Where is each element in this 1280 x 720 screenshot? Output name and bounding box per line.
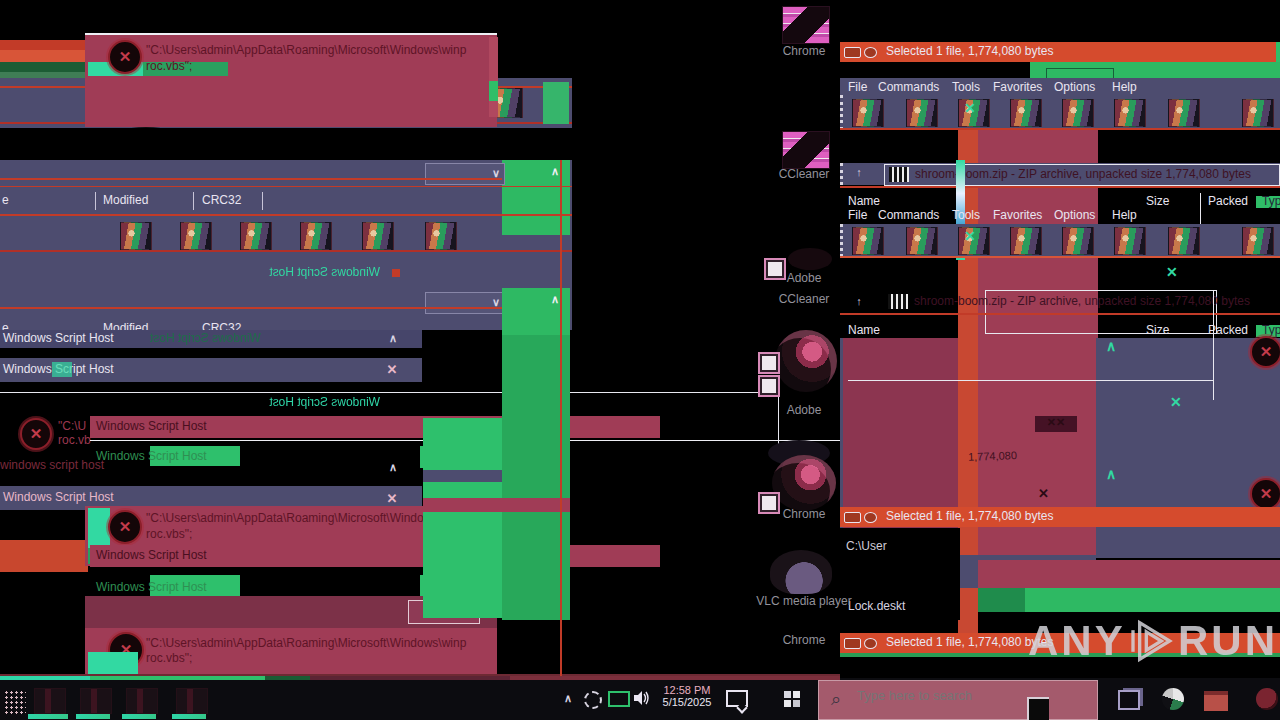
glitch-block: [1276, 42, 1280, 62]
toolbar-button-wizard[interactable]: [1168, 99, 1200, 127]
desktop-icon-label: VLC media player: [756, 594, 852, 608]
tray-expand-icon[interactable]: ∧: [560, 692, 576, 705]
glitch-x-mark: ✕: [964, 228, 976, 244]
running-indicator: [122, 714, 156, 719]
chrome-icon: [782, 6, 830, 44]
key-icon: [864, 47, 877, 58]
toolbar-button-add[interactable]: [852, 99, 884, 127]
wsh-dialog: ✕ "C:\Users\admin\AppData\Roaming\Micros…: [85, 33, 497, 127]
glitch-blob: [788, 248, 832, 270]
address-box[interactable]: shroom-boom.zip - ZIP archive, unpacked …: [884, 164, 1280, 186]
menu-item-favorites[interactable]: Favorites: [993, 80, 1042, 94]
desktop-icon-label: Adobe: [762, 403, 846, 417]
wsh-title: Windows Script Host: [3, 491, 114, 505]
menu-item-commands[interactable]: Commands: [878, 208, 939, 222]
column-header-packed[interactable]: Packed: [1208, 324, 1248, 338]
glitch-strip: [310, 676, 510, 680]
glitch-dot: [392, 269, 400, 277]
toolbar-button[interactable]: [120, 222, 152, 250]
desktop-icon-label: CCleaner: [762, 292, 846, 306]
network-display-icon[interactable]: [608, 691, 630, 707]
desktop-icon-vlc[interactable]: VLC media player: [752, 550, 856, 630]
toolbar-button-view[interactable]: [1010, 99, 1042, 127]
list-pane-fragment: [423, 418, 502, 618]
glitch-x-mark: ✕: [1038, 486, 1049, 501]
firefox-glitch-icon: [775, 330, 837, 392]
toolbar-button-delete[interactable]: [1062, 227, 1094, 255]
desktop-icon-label: CCleaner: [762, 167, 846, 181]
key-icon: [864, 638, 877, 649]
toolbar-button-view[interactable]: [1010, 227, 1042, 255]
zip-file-icon: [889, 167, 909, 182]
desktop-icon-label-lock[interactable]: Lock.deskt: [848, 600, 905, 614]
desktop-icon-label: Chrome: [762, 507, 846, 521]
address-box[interactable]: shroom-boom.zip - ZIP archive, unpacked …: [884, 292, 1278, 312]
close-icon[interactable]: ✕: [384, 362, 400, 377]
column-header-packed[interactable]: Packed: [1208, 195, 1248, 209]
action-center-icon[interactable]: [726, 690, 748, 707]
menu-item-tools[interactable]: Tools: [952, 208, 980, 222]
toolbar-button-add[interactable]: [852, 227, 884, 255]
status-text: Selected 1 file, 1,774,080 bytes: [886, 45, 1053, 59]
chevron-up-icon[interactable]: ∧: [386, 332, 400, 345]
start-button[interactable]: [4, 690, 26, 714]
toolbar-button-info[interactable]: [1242, 99, 1274, 127]
taskbar-app-button[interactable]: [80, 688, 112, 714]
column-header-type[interactable]: Typ: [1262, 195, 1280, 209]
wsh-title: Windows Script Host: [96, 549, 207, 563]
glitch-strip: [90, 676, 265, 680]
column-header-name[interactable]: Name: [848, 324, 880, 338]
dialog-message-line2: roc.vbs";: [146, 652, 192, 666]
glitch-line: [560, 160, 562, 680]
toolbar-button-extract[interactable]: [906, 227, 938, 255]
search-icon: ⌕: [831, 689, 841, 710]
desktop-icon-ccleaner[interactable]: CCleaner: [762, 131, 846, 183]
error-icon: ✕: [108, 510, 142, 544]
wsh-dialog: ✕ "C:\Users\admin\AppData\Roaming\Micros…: [85, 628, 497, 675]
column-header-name-fragment[interactable]: e: [2, 194, 9, 208]
glitch-block: [423, 498, 570, 512]
chrome-taskbar-icon[interactable]: [1162, 688, 1184, 710]
wsh-title: Windows Script Host: [3, 332, 114, 346]
glitch-block: [0, 540, 88, 572]
anyrun-watermark: ANY RUN: [1028, 612, 1278, 670]
chevron-up-icon[interactable]: ∧: [386, 461, 400, 474]
glitch-line: [0, 307, 502, 309]
menu-item-help[interactable]: Help: [1112, 208, 1137, 222]
disk-icon: [844, 47, 861, 58]
filter-dropdown[interactable]: ∨: [425, 163, 505, 185]
column-header-modified[interactable]: Modified: [103, 194, 148, 208]
glitch-line: [840, 313, 1280, 315]
file-frame-icon: [758, 375, 780, 397]
tray-circle-icon[interactable]: [584, 691, 602, 709]
windows-logo-icon[interactable]: [784, 691, 800, 707]
glitch-line: [0, 186, 572, 187]
status-text: Selected 1 file, 1,774,080 bytes: [886, 510, 1053, 524]
toolbar-button-extract[interactable]: [906, 99, 938, 127]
glitch-block: [52, 362, 72, 377]
glitch-bar: [978, 588, 1025, 612]
glitch-x-mark: ✕: [964, 100, 976, 116]
up-arrow-icon[interactable]: ↑: [850, 295, 868, 307]
glitch-strip: [510, 676, 840, 680]
vlc-glitch-icon: [770, 550, 832, 594]
running-indicator: [76, 714, 110, 719]
dialog-message-fragment: "C:\U: [58, 420, 86, 434]
toolbar-button[interactable]: [300, 222, 332, 250]
file-explorer-icon[interactable]: [1204, 691, 1228, 711]
running-indicator: [28, 714, 68, 719]
column-header-size[interactable]: Size: [1146, 195, 1169, 209]
key-icon: [864, 512, 877, 523]
anyrun-play-logo: [1128, 614, 1176, 668]
winrar-statusbar: Selected 1 file, 1,774,080 bytes: [840, 42, 1280, 62]
column-divider: [193, 192, 194, 210]
desktop-icon-label-chrome-3[interactable]: Chrome: [762, 633, 846, 647]
desktop-icon-chrome[interactable]: Chrome: [762, 6, 846, 58]
scroll-up-mark: ∧: [1106, 466, 1116, 482]
error-icon: ✕: [1250, 478, 1280, 510]
column-header-name[interactable]: Name: [848, 195, 880, 209]
column-divider: [262, 192, 263, 210]
scrollbar-fragment[interactable]: [489, 37, 498, 117]
menu-item-file[interactable]: File: [848, 208, 867, 222]
scroll-up-mark: ∧: [1106, 338, 1116, 354]
ccleaner-icon: [782, 131, 830, 169]
toolbar-button-find[interactable]: [1114, 99, 1146, 127]
disk-icon: [844, 638, 861, 649]
address-text: shroom-boom.zip - ZIP archive, unpacked …: [914, 295, 1250, 309]
glitch-blob: [1027, 697, 1049, 720]
menu-item-options[interactable]: Options: [1054, 208, 1095, 222]
watermark-any: ANY: [1028, 617, 1126, 665]
close-icon[interactable]: ✕: [384, 491, 400, 506]
speaker-icon[interactable]: [632, 689, 650, 707]
glitch-band: [978, 560, 1280, 588]
column-header-crc32[interactable]: CRC32: [202, 194, 241, 208]
column-header-size[interactable]: Size: [1146, 324, 1169, 338]
error-icon: ✕: [20, 418, 52, 450]
glitch-block: [423, 470, 502, 482]
menu-item-favorites[interactable]: Favorites: [993, 208, 1042, 222]
watermark-run: RUN: [1178, 617, 1278, 665]
desktop-icon-label: Chrome: [762, 44, 846, 58]
glitch-block: [489, 81, 498, 101]
clock-time: 12:58 PM: [656, 684, 718, 696]
menu-item-options[interactable]: Options: [1054, 80, 1095, 94]
glitch-block: [88, 652, 138, 675]
winrar-statusbar: Selected 1 file, 1,774,080 bytes: [840, 507, 1280, 527]
zip-file-icon: [888, 294, 908, 309]
dialog-message-line2: roc.vbs";: [146, 528, 192, 542]
wsh-title-mirrored: Windows Script Host: [150, 332, 261, 346]
glitch-bar: [1025, 588, 1280, 612]
toolbar-button[interactable]: [240, 222, 272, 250]
taskbar-app-button[interactable]: [176, 688, 208, 714]
glitch-x-mark: ✕: [1166, 264, 1178, 280]
taskbar-app-button[interactable]: [34, 688, 66, 714]
glitch-strip: [265, 676, 310, 680]
menu-item-file[interactable]: File: [848, 80, 867, 94]
toolbar-button-find[interactable]: [1114, 227, 1146, 255]
menu-item-help[interactable]: Help: [1112, 80, 1137, 94]
glitch-block: [1100, 130, 1240, 164]
wsh-title-mirrored: Windows Script Host: [230, 396, 380, 410]
firefox-glitch-icon: [772, 455, 836, 511]
taskbar-clock[interactable]: 12:58 PM 5/15/2025: [656, 684, 718, 708]
dialog-message-fragment: roc.vb: [58, 434, 91, 448]
glitch-line: [840, 186, 1280, 188]
ghost-line: [1213, 290, 1214, 400]
glitch-block: [543, 82, 569, 124]
glitch-block: ✕✕: [1035, 416, 1077, 432]
tray-app-icon[interactable]: [1256, 688, 1278, 710]
glitch-line: [0, 250, 572, 252]
ghost-line: [848, 380, 1213, 381]
desktop-icon-adobe[interactable]: Adobe CCleaner: [756, 248, 852, 312]
toolbar-button[interactable]: [425, 222, 457, 250]
search-box[interactable]: ⌕: [818, 680, 1098, 720]
wsh-title: Windows Script Host: [96, 420, 207, 434]
column-divider: [95, 192, 96, 210]
glitch-band: [958, 338, 978, 640]
dialog-message-line1: "C:\Users\admin\AppData\Roaming\Microsof…: [146, 637, 466, 651]
wsh-title-mirrored: Windows Script Host: [230, 266, 380, 280]
desktop-icon-chrome-2[interactable]: Chrome: [754, 440, 850, 524]
clock-date: 5/15/2025: [656, 696, 718, 708]
sandbox-desktop: ✕ "C:\Users\admin\AppData\Roaming\Micros…: [0, 0, 1280, 720]
error-icon: ✕: [1250, 336, 1280, 368]
desktop-icon-adobe-2[interactable]: Adobe: [754, 330, 850, 420]
filter-dropdown[interactable]: ∨: [425, 292, 505, 314]
taskbar: ∧ 12:58 PM 5/15/2025 ⌕: [0, 678, 1280, 720]
glitch-line: [0, 214, 572, 216]
toolbar-button-wizard[interactable]: [1168, 227, 1200, 255]
dialog-message-line1: "C:\Users\admin\AppData\Roaming\Microsof…: [146, 44, 466, 58]
glitch-block: [88, 508, 110, 548]
menu-item-commands[interactable]: Commands: [878, 80, 939, 94]
dialog-message-line1: "C:\Users\admin\AppData\Roaming\Microsof…: [146, 512, 466, 526]
taskbar-app-button[interactable]: [126, 688, 158, 714]
error-icon: ✕: [108, 40, 142, 74]
menu-item-tools[interactable]: Tools: [952, 80, 980, 94]
running-indicator: [172, 714, 206, 719]
file-frame-icon: [758, 352, 780, 374]
toolbar-button-delete[interactable]: [1062, 99, 1094, 127]
action-center-tail: [736, 702, 747, 713]
address-text: shroom-boom.zip - ZIP archive, unpacked …: [915, 168, 1251, 182]
toolbar-button[interactable]: [362, 222, 394, 250]
glitch-line: [0, 178, 502, 180]
glitch-x-mark: ✕: [1170, 394, 1182, 410]
dialog-message-line2: roc.vbs";: [146, 60, 192, 74]
wsh-title-lowercase: windows script host: [0, 459, 104, 473]
glitch-strip: [0, 676, 90, 680]
wsh-title: Windows Script Host: [96, 581, 207, 595]
task-view-icon[interactable]: [1118, 690, 1140, 710]
up-arrow-icon[interactable]: ↑: [850, 166, 868, 178]
toolbar-button-info[interactable]: [1242, 227, 1274, 255]
glitch-line: [840, 256, 1280, 258]
size-glitch-fragment: 1,774,080: [968, 449, 1017, 463]
toolbar-button[interactable]: [180, 222, 212, 250]
wsh-title: Windows Script Host: [96, 450, 207, 464]
desktop-icon-label: Adobe: [762, 271, 846, 285]
